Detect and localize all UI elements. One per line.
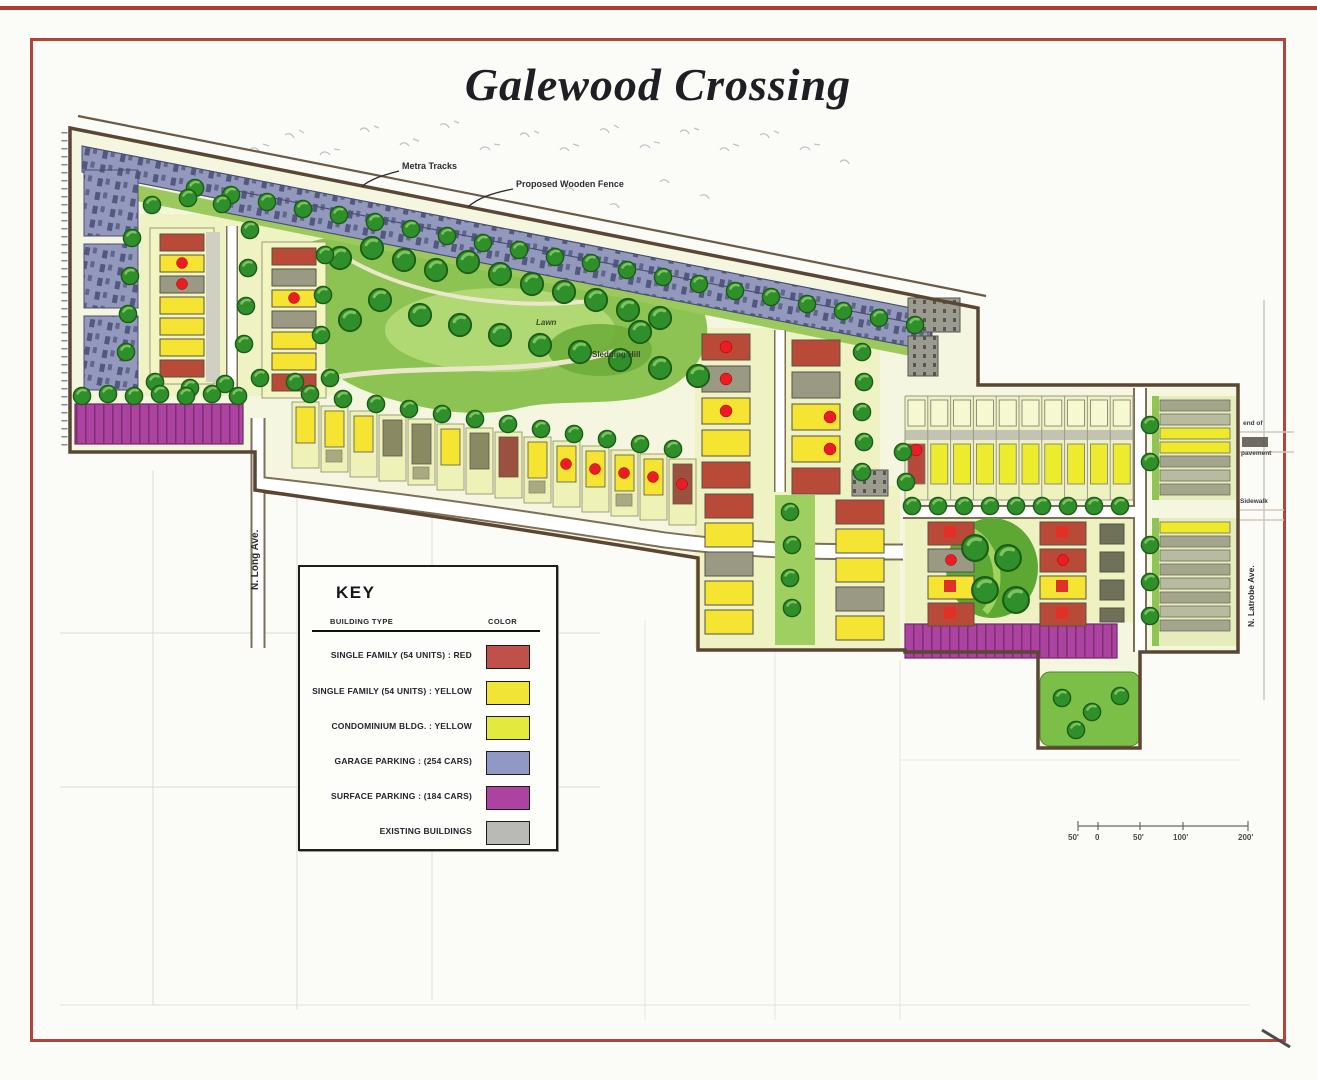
surface-parking-left: [75, 404, 243, 444]
legend-row: GARAGE PARKING : (254 CARS): [310, 751, 546, 775]
legend-row-label: EXISTING BUILDINGS: [310, 826, 472, 836]
legend-row: EXISTING BUILDINGS: [310, 821, 546, 845]
townhouse-grid: [905, 396, 1133, 500]
legend-swatch-surface-parking: [486, 786, 530, 810]
legend-row-label: SINGLE FAMILY (54 UNITS) : RED: [310, 650, 472, 660]
legend-row-label: GARAGE PARKING : (254 CARS): [310, 756, 472, 766]
legend-divider: [312, 630, 540, 632]
legend-row: SINGLE FAMILY (54 UNITS) : RED: [310, 645, 546, 669]
legend-header-color: COLOR: [488, 617, 517, 626]
scale-label-3: 100': [1173, 833, 1188, 842]
label-end-of: end of: [1243, 420, 1263, 427]
label-long-ave: N. Long Ave.: [250, 530, 261, 590]
end-of-pavement-bar: [1242, 437, 1268, 447]
legend-row-label: CONDOMINIUM BLDG. : YELLOW: [310, 721, 472, 731]
legend-row: SURFACE PARKING : (184 CARS): [310, 786, 546, 810]
label-proposed-fence: Proposed Wooden Fence: [516, 179, 624, 189]
legend-swatch-single-family-yellow: [486, 681, 530, 705]
label-lawn: Lawn: [536, 318, 556, 327]
legend-row-label: SINGLE FAMILY (54 UNITS) : YELLOW: [310, 686, 472, 696]
legend-swatch-condominium: [486, 716, 530, 740]
page-title: Galewood Crossing: [30, 58, 1286, 111]
legend-row-label: SURFACE PARKING : (184 CARS): [310, 791, 472, 801]
legend-box: KEY BUILDING TYPE COLOR SINGLE FAMILY (5…: [298, 565, 558, 851]
label-sidewalk: Sidewalk: [1240, 498, 1268, 505]
label-sledding-hill: Sledding Hill: [592, 350, 640, 359]
legend-row: CONDOMINIUM BLDG. : YELLOW: [310, 716, 546, 740]
site-plan-drawing: [0, 0, 1317, 1080]
site-plan-page: Galewood Crossing Metra Tracks Proposed …: [0, 0, 1317, 1080]
label-pavement: pavement: [1241, 450, 1271, 457]
label-latrobe-ave: N. Latrobe Ave.: [1246, 565, 1256, 627]
legend-row: SINGLE FAMILY (54 UNITS) : YELLOW: [310, 681, 546, 705]
scale-label-1: 0: [1095, 833, 1099, 842]
legend-swatch-existing-buildings: [486, 821, 530, 845]
pen-mark: [1262, 1030, 1290, 1047]
scale-label-0: 50': [1068, 833, 1079, 842]
legend-swatch-single-family-red: [486, 645, 530, 669]
legend-swatch-garage-parking: [486, 751, 530, 775]
legend-header-building-type: BUILDING TYPE: [330, 617, 393, 626]
scale-label-2: 50': [1133, 833, 1144, 842]
label-metra-tracks: Metra Tracks: [402, 161, 457, 171]
scale-label-4: 200': [1238, 833, 1253, 842]
legend-title: KEY: [336, 583, 375, 603]
scale-bar: [1078, 821, 1248, 831]
